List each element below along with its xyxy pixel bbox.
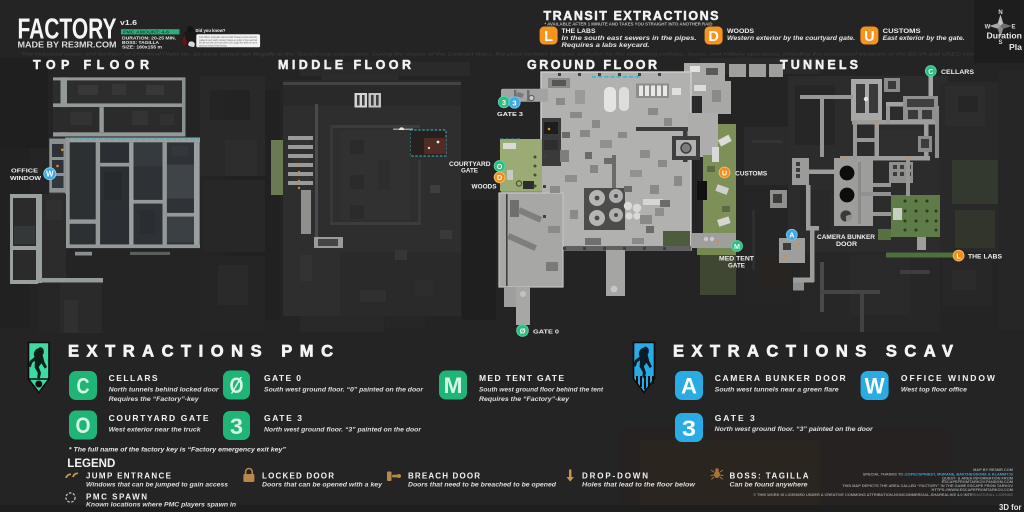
svg-text:D: D [708, 29, 718, 45]
svg-text:GATE 0: GATE 0 [533, 330, 559, 336]
svg-text:* AVAILABLE AFTER 1 MINUTE AND: * AVAILABLE AFTER 1 MINUTE AND TAKES YOU… [545, 22, 713, 27]
svg-text:TOP FLOOR: TOP FLOOR [33, 58, 149, 72]
svg-text:GATE 3: GATE 3 [497, 112, 524, 118]
svg-text:GATE: GATE [461, 168, 479, 175]
svg-text:COURTYARD GATE: COURTYARD GATE [109, 413, 209, 423]
svg-text:3: 3 [512, 98, 516, 107]
svg-text:Western exterior by the courty: Western exterior by the courtyard gate. [727, 35, 855, 42]
svg-text:CAMERA BUNKER DOOR: CAMERA BUNKER DOOR [715, 373, 846, 383]
svg-text:O: O [497, 162, 503, 171]
svg-text:Holes that lead to the floor b: Holes that lead to the floor below [582, 481, 696, 488]
svg-text:A: A [789, 231, 794, 240]
svg-text:Doors that can be opened with: Doors that can be opened with a key [262, 481, 383, 488]
svg-text:3: 3 [682, 416, 696, 441]
svg-text:Requires the “Factory”-key: Requires the “Factory”-key [479, 396, 569, 403]
svg-text:MADE BY RE3MR.COM: MADE BY RE3MR.COM [18, 41, 117, 50]
svg-text:West top floor office: West top floor office [901, 386, 967, 393]
svg-text:TUNNELS: TUNNELS [780, 58, 858, 72]
svg-text:Duration: Duration [987, 31, 1022, 41]
svg-text:L: L [544, 29, 553, 45]
svg-text:U: U [722, 168, 727, 177]
svg-text:O: O [76, 413, 91, 438]
svg-text:C: C [928, 67, 933, 76]
svg-text:v1.6: v1.6 [120, 20, 137, 27]
svg-text:JUMP ENTRANCE: JUMP ENTRANCE [86, 472, 172, 481]
svg-text:L: L [956, 251, 961, 260]
svg-text:OFFICE: OFFICE [11, 169, 38, 175]
svg-text:Windows that can be jumped to: Windows that can be jumped to gain acces… [86, 481, 229, 488]
svg-text:WOODS: WOODS [472, 185, 497, 191]
svg-text:GATE 3: GATE 3 [264, 413, 302, 423]
svg-text:DROP-DOWN: DROP-DOWN [582, 472, 648, 481]
svg-text:Known locations where PMC play: Known locations where PMC players spawn … [86, 502, 236, 509]
svg-text:South west ground floor behind: South west ground floor behind the tent [479, 387, 604, 394]
svg-text:MED TENT: MED TENT [719, 256, 754, 262]
svg-text:BREACH DOOR: BREACH DOOR [408, 472, 480, 481]
svg-text:M: M [444, 373, 463, 398]
svg-text:GATE: GATE [728, 263, 745, 269]
svg-text:MED TENT GATE: MED TENT GATE [479, 373, 564, 383]
svg-text:SIZE: 160x155 m: SIZE: 160x155 m [122, 44, 162, 49]
svg-text:C: C [77, 374, 90, 399]
svg-text:CELLARS: CELLARS [941, 69, 975, 76]
svg-text:CAMERA BUNKER: CAMERA BUNKER [817, 234, 876, 241]
svg-text:Doors that need to be breached: Doors that need to be breached to be ope… [408, 481, 556, 488]
svg-text:* The full name of the factory: * The full name of the factory key is “F… [69, 447, 287, 454]
svg-text:PMC AMOUNT: 4-6: PMC AMOUNT: 4-6 [123, 30, 169, 35]
svg-text:Ø: Ø [230, 373, 244, 398]
svg-text:A: A [681, 374, 697, 399]
svg-text:North tunnels behind locked do: North tunnels behind locked door [109, 387, 220, 394]
svg-text:South west ground floor. “0” p: South west ground floor. “0” painted on … [264, 387, 424, 394]
svg-text:WINDOW: WINDOW [10, 176, 42, 182]
svg-text:W: W [865, 374, 885, 399]
svg-text:S: S [998, 40, 1002, 46]
svg-text:3D for re: 3D for re [999, 503, 1024, 512]
svg-text:West exterior near the truck: West exterior near the truck [109, 427, 201, 434]
svg-text:THE LABS: THE LABS [968, 254, 1003, 261]
svg-text:Can be found anywhere: Can be found anywhere [730, 481, 809, 488]
svg-text:E: E [1011, 25, 1015, 31]
svg-text:GATE 0: GATE 0 [264, 373, 301, 383]
svg-text:North west ground floor. “3” p: North west ground floor. “3” painted on … [264, 426, 422, 433]
svg-text:East exterior by the gate.: East exterior by the gate. [883, 35, 965, 42]
svg-text:Requires the “Factory”-key: Requires the “Factory”-key [109, 396, 199, 403]
svg-text:3: 3 [502, 98, 506, 107]
svg-text:Pla: Pla [1009, 42, 1022, 52]
svg-text:D: D [497, 173, 502, 182]
svg-text:PMC SPAWN: PMC SPAWN [86, 492, 147, 501]
svg-text:BOSS: TAGILLA: BOSS: TAGILLA [730, 472, 809, 481]
svg-text:Ø: Ø [520, 326, 526, 335]
svg-text:Requires a labs keycard.: Requires a labs keycard. [562, 42, 650, 49]
svg-text:Did you know?: Did you know? [196, 28, 226, 34]
svg-text:GROUND FLOOR: GROUND FLOOR [527, 58, 657, 72]
svg-text:M: M [734, 242, 740, 251]
svg-text:N: N [998, 10, 1002, 16]
svg-text:LOCKED DOOR: LOCKED DOOR [262, 472, 334, 481]
svg-text:U: U [864, 29, 874, 45]
svg-text:3: 3 [230, 414, 243, 439]
svg-text:© THIS WORK IS LICENSED UNDER: © THIS WORK IS LICENSED UNDER A CREATIVE… [753, 492, 1013, 497]
svg-text:W: W [46, 170, 54, 179]
svg-text:South west tunnels near a gree: South west tunnels near a green flare [715, 386, 839, 393]
svg-text:DOOR: DOOR [836, 241, 858, 248]
svg-text:LEGEND: LEGEND [67, 458, 115, 470]
svg-text:"The industrial waste and faci: "The industrial waste and facilities of … [19, 52, 1008, 57]
svg-text:CUSTOMS: CUSTOMS [735, 171, 768, 178]
svg-text:saying our silently himself ai: saying our silently himself aiming. [199, 43, 227, 47]
svg-text:North west ground floor. “3” p: North west ground floor. “3” painted on … [715, 426, 874, 433]
svg-text:W: W [985, 25, 991, 31]
